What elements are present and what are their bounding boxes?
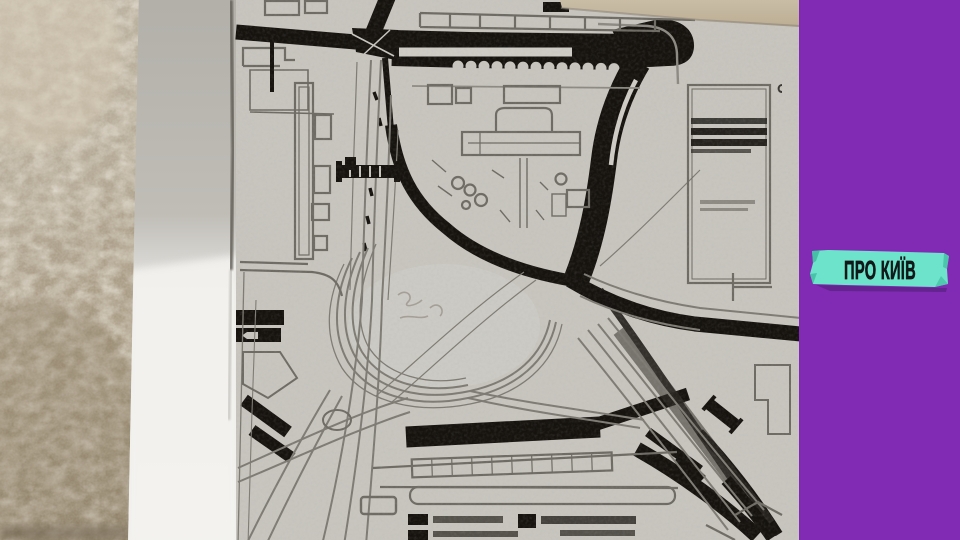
svg-text:ПРО КИЇВ: ПРО КИЇВ (844, 255, 916, 285)
